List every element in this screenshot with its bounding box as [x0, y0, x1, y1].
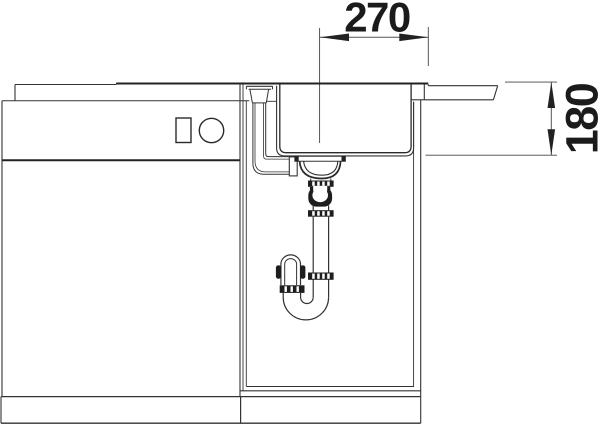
svg-text:180: 180 — [557, 83, 600, 154]
